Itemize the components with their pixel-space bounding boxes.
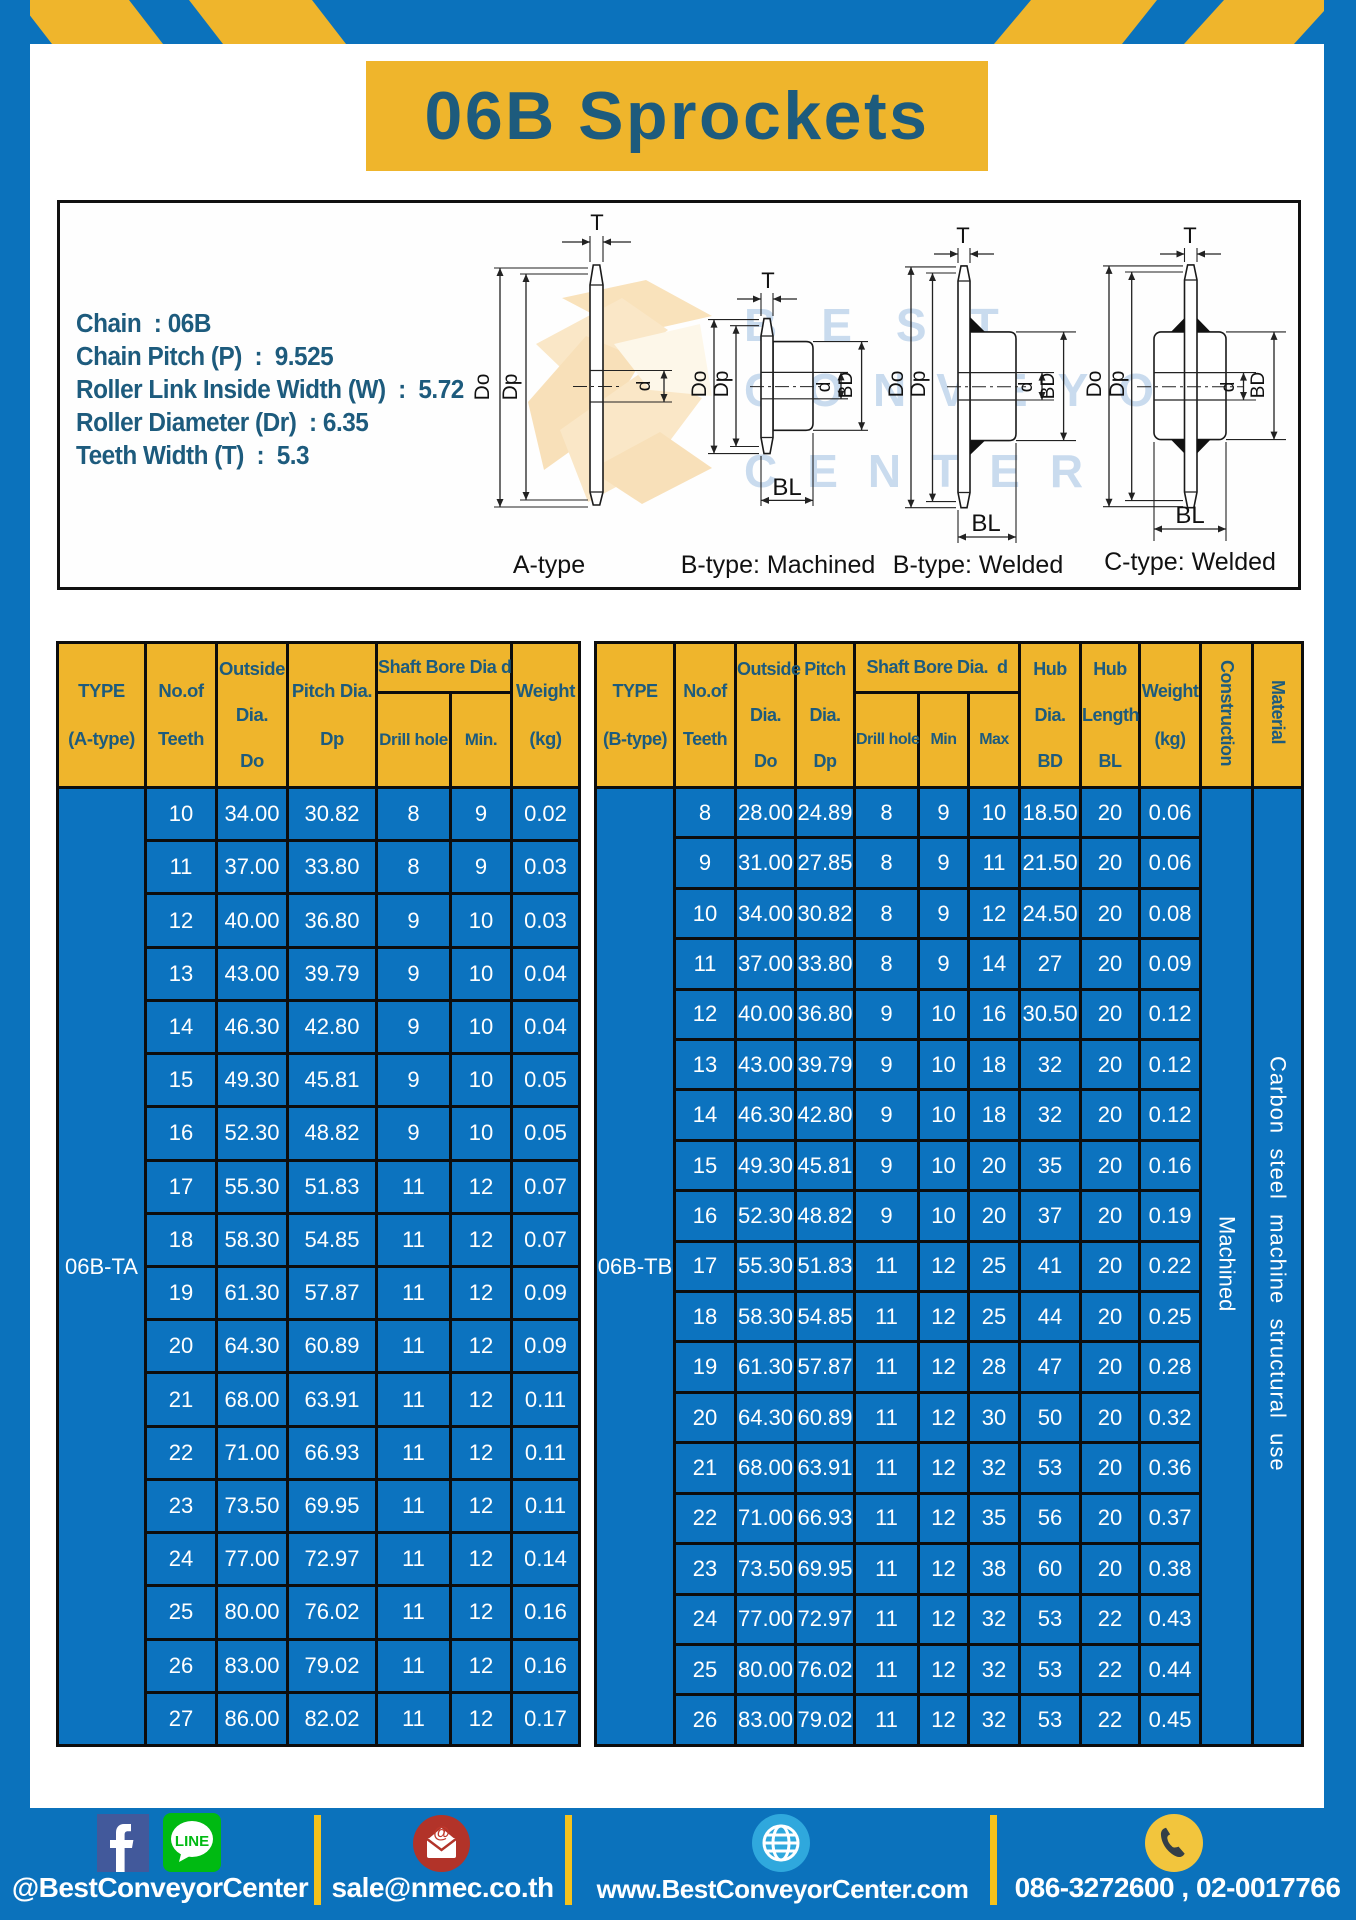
svg-text:T: T xyxy=(956,223,969,248)
svg-text:Dp: Dp xyxy=(1106,371,1129,398)
svg-text:Dp: Dp xyxy=(907,371,930,398)
svg-text:C-type: Welded: C-type: Welded xyxy=(1104,548,1276,576)
svg-text:BL: BL xyxy=(971,510,1000,537)
svg-text:B-type: Welded: B-type: Welded xyxy=(893,551,1063,579)
svg-text:@: @ xyxy=(433,1823,450,1842)
svg-text:d: d xyxy=(634,381,655,392)
svg-text:Dp: Dp xyxy=(499,374,522,401)
svg-text:BD: BD xyxy=(1248,372,1269,398)
svg-text:Do: Do xyxy=(688,371,711,398)
svg-text:Chain : 06B: Chain : 06B xyxy=(76,309,211,338)
svg-text:BD: BD xyxy=(836,372,857,398)
svg-text:T: T xyxy=(761,268,774,293)
svg-text:T: T xyxy=(1183,223,1196,248)
svg-text:BD: BD xyxy=(1038,373,1059,399)
svg-text:BL: BL xyxy=(772,474,801,501)
svg-text:LINE: LINE xyxy=(175,1833,209,1850)
svg-text:B-type: Machined: B-type: Machined xyxy=(681,551,876,579)
svg-text:d: d xyxy=(1218,382,1239,393)
svg-text:BL: BL xyxy=(1175,502,1204,529)
svg-text:Dp: Dp xyxy=(710,371,733,398)
svg-text:Roller Diameter (Dr) : 6.35: Roller Diameter (Dr) : 6.35 xyxy=(76,408,369,437)
svg-text:Do: Do xyxy=(1083,371,1106,398)
svg-text:Chain Pitch (P) : 9.525: Chain Pitch (P) : 9.525 xyxy=(76,342,334,371)
svg-text:d: d xyxy=(1016,382,1037,393)
svg-text:Do: Do xyxy=(471,374,494,401)
svg-text:Teeth Width (T) : 5.3: Teeth Width (T) : 5.3 xyxy=(76,441,309,470)
svg-text:d: d xyxy=(814,382,835,393)
svg-text:A-type: A-type xyxy=(513,551,585,579)
svg-text:Do: Do xyxy=(885,371,908,398)
svg-text:T: T xyxy=(590,210,603,235)
svg-text:Roller Link Inside Width (W): Roller Link Inside Width (W) : 5.72 xyxy=(76,375,464,404)
